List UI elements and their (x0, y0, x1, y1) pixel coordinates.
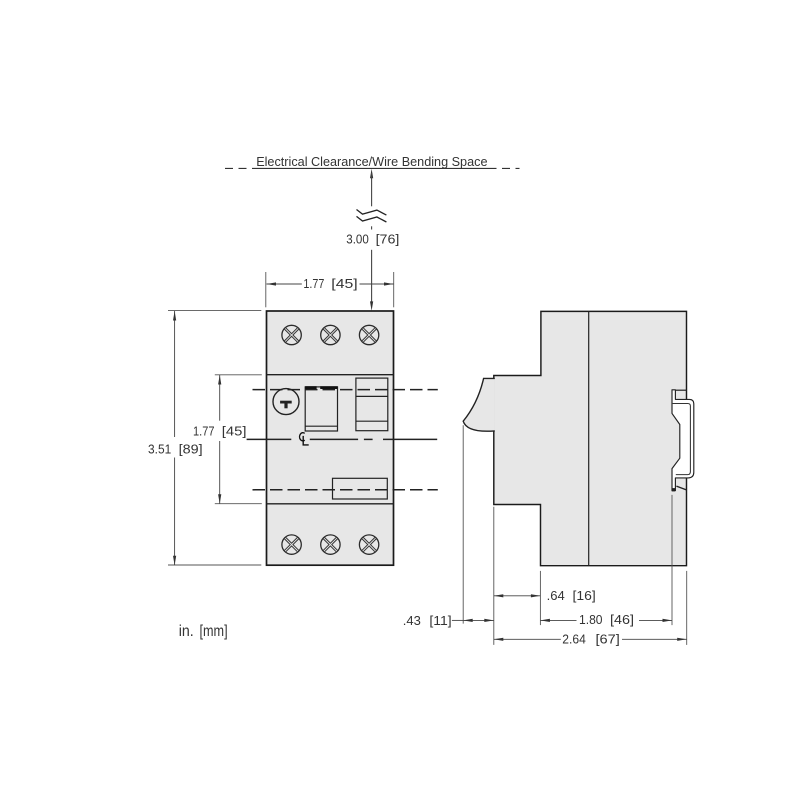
svg-text:2.64: 2.64 (562, 632, 586, 646)
svg-text:.43: .43 (403, 614, 421, 628)
svg-text:1.77: 1.77 (193, 424, 215, 438)
svg-text:[16]: [16] (573, 589, 596, 603)
svg-text:Electrical Clearance/Wire Bend: Electrical Clearance/Wire Bending Space (256, 154, 487, 169)
svg-text:[67]: [67] (596, 632, 620, 646)
svg-text:1.80: 1.80 (579, 613, 603, 627)
svg-text:in.: in. (179, 623, 194, 640)
svg-text:[76]: [76] (376, 233, 400, 247)
svg-text:3.00: 3.00 (346, 233, 369, 247)
svg-text:[45]: [45] (222, 424, 247, 438)
svg-text:3.51: 3.51 (148, 443, 171, 457)
svg-text:1.77: 1.77 (303, 277, 324, 291)
svg-text:[11]: [11] (429, 614, 451, 628)
svg-text:[46]: [46] (610, 613, 634, 627)
svg-text:[89]: [89] (179, 443, 203, 457)
svg-text:.64: .64 (547, 589, 565, 603)
svg-text:[mm]: [mm] (200, 623, 228, 640)
svg-text:[45]: [45] (331, 277, 357, 291)
